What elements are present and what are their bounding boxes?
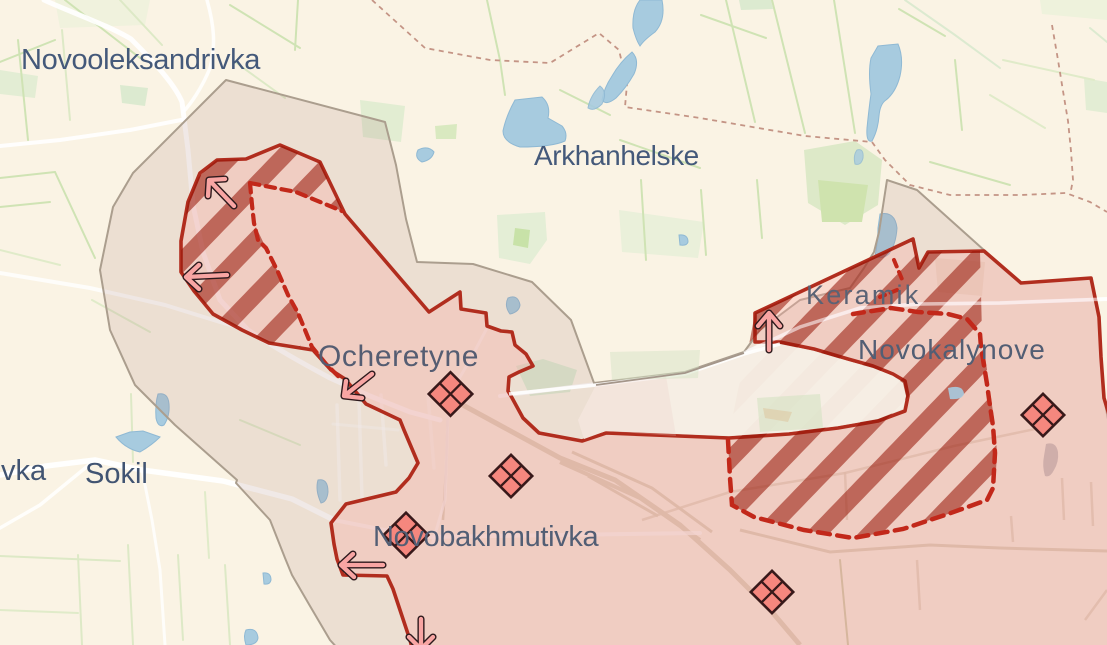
- svg-text:Keramik: Keramik: [806, 280, 920, 310]
- svg-text:vka: vka: [1, 455, 47, 487]
- svg-text:Novooleksandrivka: Novooleksandrivka: [21, 44, 261, 76]
- svg-text:Novobakhmutivka: Novobakhmutivka: [373, 521, 599, 553]
- svg-text:Arkhanhelske: Arkhanhelske: [534, 140, 699, 171]
- svg-text:Ocheretyne: Ocheretyne: [318, 340, 479, 373]
- svg-text:Sokil: Sokil: [85, 458, 148, 490]
- svg-text:Novokalynove: Novokalynove: [858, 334, 1046, 365]
